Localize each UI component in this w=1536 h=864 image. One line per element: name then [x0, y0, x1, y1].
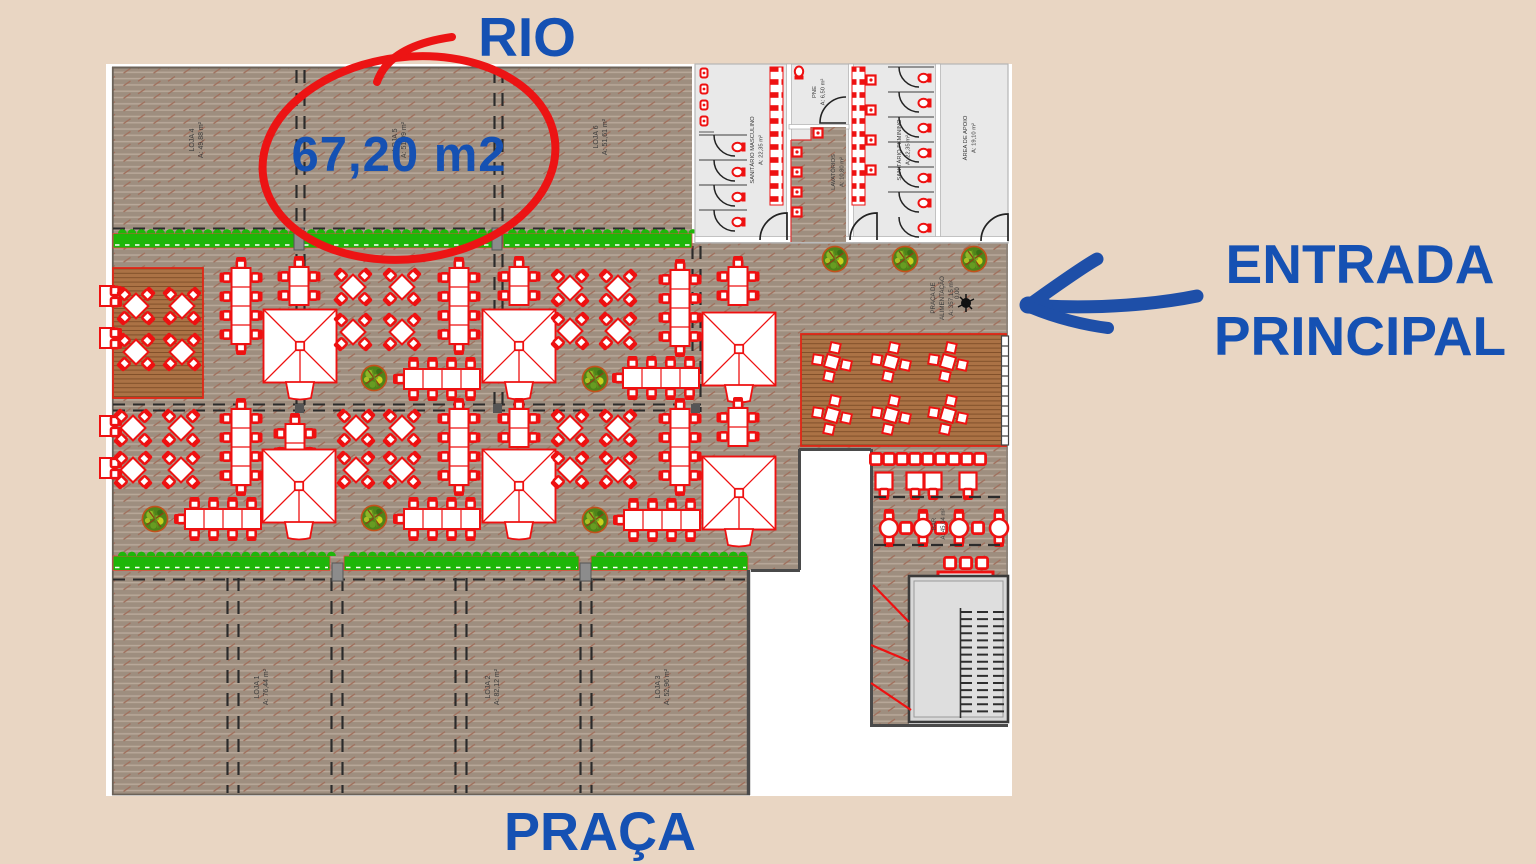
svg-text:ALIMENTAÇÃO: ALIMENTAÇÃO — [939, 276, 946, 320]
svg-text:PNE: PNE — [812, 86, 818, 98]
svg-text:A: 45,04 m²: A: 45,04 m² — [941, 508, 947, 539]
svg-text:A: 357,15 m²: A: 357,15 m² — [948, 280, 955, 315]
svg-text:A: 82,12 m²: A: 82,12 m² — [494, 668, 501, 705]
svg-text:A: 52,96 m²: A: 52,96 m² — [664, 668, 671, 705]
svg-text:A: 51,61 m²: A: 51,61 m² — [602, 118, 609, 155]
svg-text:A: 76,44 m²: A: 76,44 m² — [263, 668, 270, 705]
svg-text:ENTRADA: ENTRADA — [1226, 233, 1495, 295]
svg-text:LAVATÓRIOS: LAVATÓRIOS — [830, 154, 837, 190]
svg-text:LOJA 1: LOJA 1 — [254, 675, 261, 698]
svg-text:A: 19,10 m²: A: 19,10 m² — [972, 123, 978, 153]
svg-text:67,20 m2: 67,20 m2 — [291, 128, 506, 182]
svg-text:LOJA 6: LOJA 6 — [593, 125, 600, 148]
svg-text:BAR: BAR — [932, 517, 938, 530]
svg-text:RIO: RIO — [478, 6, 576, 68]
svg-text:A: 49,88 m²: A: 49,88 m² — [198, 121, 205, 158]
svg-text:A: 6,50 m²: A: 6,50 m² — [821, 79, 827, 106]
svg-text:0,00: 0,00 — [955, 287, 961, 299]
svg-text:PRINCIPAL: PRINCIPAL — [1214, 305, 1506, 367]
svg-text:PRAÇA DE: PRAÇA DE — [930, 282, 937, 313]
svg-text:SANITÁRIO MASCULINO: SANITÁRIO MASCULINO — [749, 116, 756, 184]
svg-text:A: 10,80 m²: A: 10,80 m² — [840, 157, 846, 187]
svg-text:LOJA 3: LOJA 3 — [655, 675, 662, 698]
svg-text:LOJA 4: LOJA 4 — [189, 128, 196, 151]
svg-text:A: 22,35 m²: A: 22,35 m² — [759, 135, 765, 165]
svg-text:PRAÇA: PRAÇA — [504, 802, 696, 862]
svg-text:LOJA 2: LOJA 2 — [485, 675, 492, 698]
svg-text:ÁREA DE APOIO: ÁREA DE APOIO — [962, 115, 969, 160]
